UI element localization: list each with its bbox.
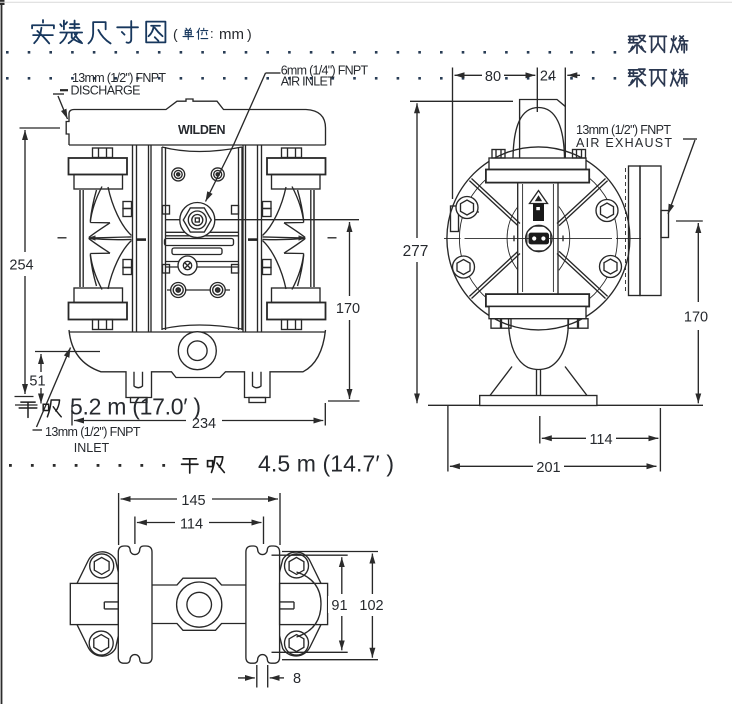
svg-text:): ) bbox=[247, 26, 252, 42]
svg-text:91: 91 bbox=[331, 598, 347, 614]
svg-text:114: 114 bbox=[180, 517, 203, 533]
svg-text:13mm (1/2") FNPT: 13mm (1/2") FNPT bbox=[45, 425, 141, 439]
svg-text:201: 201 bbox=[536, 460, 560, 476]
svg-text:170: 170 bbox=[336, 301, 360, 317]
svg-text:80: 80 bbox=[485, 69, 501, 85]
svg-text:170: 170 bbox=[684, 310, 708, 326]
svg-text:145: 145 bbox=[181, 493, 205, 509]
svg-text:114: 114 bbox=[589, 432, 612, 448]
svg-text:INLET: INLET bbox=[74, 441, 110, 455]
svg-text:24: 24 bbox=[540, 69, 556, 85]
svg-text:13mm (1/2") FNPT: 13mm (1/2") FNPT bbox=[576, 123, 671, 137]
svg-text:AIR EXHAUST: AIR EXHAUST bbox=[576, 136, 672, 150]
svg-text:mm: mm bbox=[219, 26, 244, 43]
svg-text:(: ( bbox=[173, 26, 178, 42]
svg-text:277: 277 bbox=[403, 243, 429, 260]
svg-text:5.2 m (17.0′ ): 5.2 m (17.0′ ) bbox=[70, 394, 201, 420]
svg-text:8: 8 bbox=[293, 671, 301, 687]
svg-text:4.5 m (14.7′ ): 4.5 m (14.7′ ) bbox=[258, 451, 394, 477]
svg-text:DISCHARGE: DISCHARGE bbox=[71, 83, 141, 97]
svg-text:AIR INLET: AIR INLET bbox=[281, 75, 335, 89]
svg-text:254: 254 bbox=[9, 258, 33, 274]
svg-text:51: 51 bbox=[29, 374, 45, 390]
svg-text::: : bbox=[210, 26, 214, 41]
svg-text:102: 102 bbox=[359, 598, 383, 614]
svg-text:WILDEN: WILDEN bbox=[178, 123, 226, 137]
